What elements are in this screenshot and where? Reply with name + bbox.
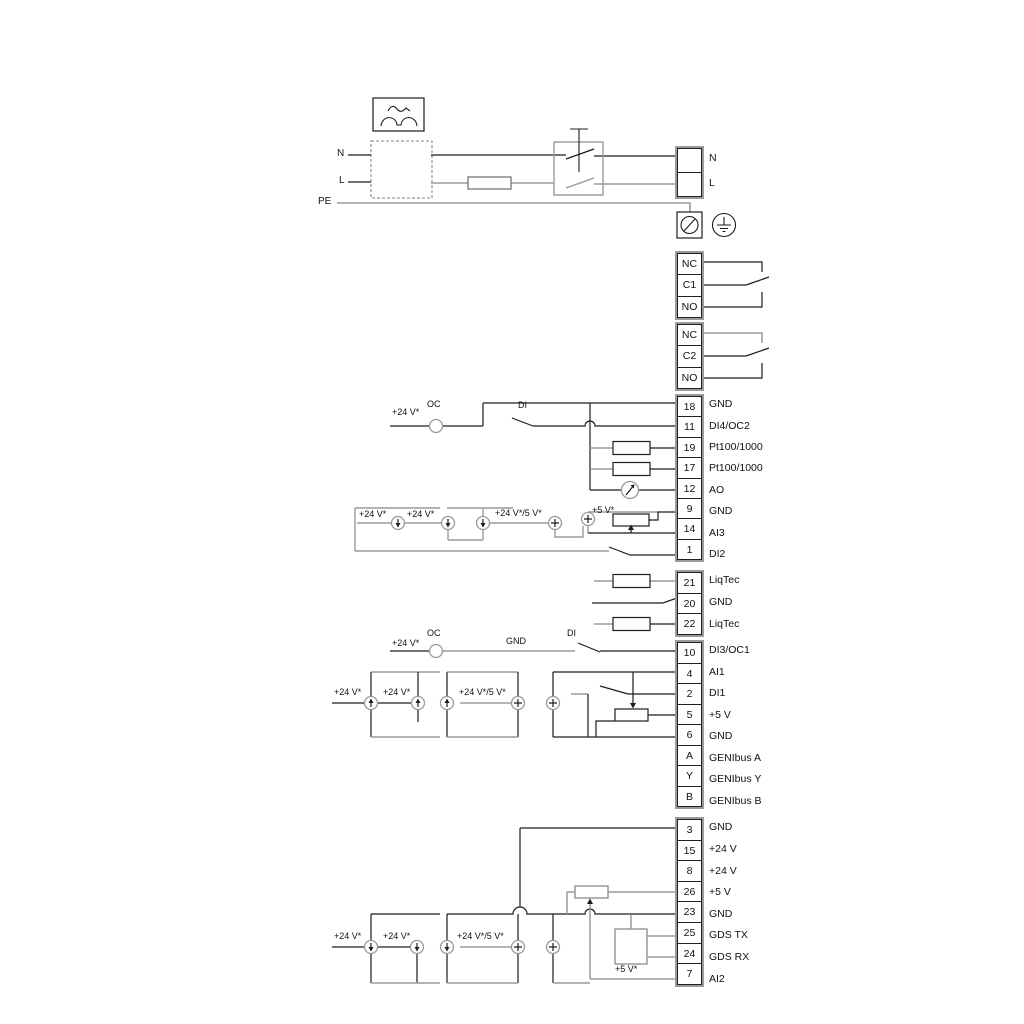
pt100-resistor-2 — [613, 463, 650, 476]
annotation-v24-4: +24 V* — [392, 638, 419, 648]
liqtec-strip: 212022 — [675, 570, 704, 637]
terminal-NO: NO — [677, 296, 702, 318]
supply-source-plus-icon — [547, 697, 560, 710]
terminal-label-di2: DI2 — [709, 548, 725, 560]
terminal-label--24-v: +24 V — [709, 843, 737, 855]
switch-actuator — [570, 129, 588, 172]
terminal-5: 5 — [677, 704, 702, 726]
terminal-label--24-v: +24 V — [709, 865, 737, 877]
terminal-Y: Y — [677, 765, 702, 787]
terminal-NC: NC — [677, 324, 702, 346]
annotation-n-left: N — [337, 148, 344, 159]
annotation-v24-5-2: +24 V*/5 V* — [459, 687, 506, 697]
supply-source-up-icon — [365, 697, 378, 710]
open-collector-icon — [430, 645, 443, 658]
potentiometer-ai2 — [575, 886, 608, 898]
annotation-v24-5-1: +24 V*/5 V* — [495, 508, 542, 518]
annotation-v24-3: +24 V* — [407, 509, 434, 519]
annotation-v24-1: +24 V* — [392, 407, 419, 417]
supply-source-down-icon — [477, 517, 490, 530]
terminal-label-gds-rx: GDS RX — [709, 951, 749, 963]
terminal-L — [677, 172, 702, 197]
io3-wiring — [332, 828, 677, 983]
earth-icon — [713, 214, 736, 237]
terminal-label-gnd: GND — [709, 505, 732, 517]
liqtec-resistor-1 — [613, 575, 650, 588]
ac-symbol-box — [373, 98, 424, 131]
terminal-label-genibus-b: GENIbus B — [709, 795, 762, 807]
sine-icon — [388, 106, 410, 111]
terminal-label-l: L — [709, 177, 715, 189]
terminal-label-gnd: GND — [709, 596, 732, 608]
relay-2: NCC2NO — [675, 322, 704, 391]
terminal-label-liqtec: LiqTec — [709, 618, 739, 630]
terminal-18: 18 — [677, 396, 702, 417]
terminal-21: 21 — [677, 572, 702, 594]
terminal-label-ai2: AI2 — [709, 973, 725, 985]
terminal-26: 26 — [677, 881, 702, 903]
annotation-v5-2: +5 V* — [615, 964, 637, 974]
terminal-9: 9 — [677, 498, 702, 519]
terminal-label-gnd: GND — [709, 730, 732, 742]
terminal-label-di4-oc2: DI4/OC2 — [709, 420, 750, 432]
annotation-v24-8: +24 V* — [383, 931, 410, 941]
terminal-label-ao: AO — [709, 484, 724, 496]
filter-box — [371, 141, 432, 198]
annotation-pe-left: PE — [318, 196, 331, 207]
supply-source-plus-icon — [512, 697, 525, 710]
terminal-22: 22 — [677, 613, 702, 635]
terminal-label-n: N — [709, 152, 717, 164]
terminal-A: A — [677, 745, 702, 767]
terminal-14: 14 — [677, 518, 702, 539]
liqtec-resistor-2 — [613, 618, 650, 631]
terminal-8: 8 — [677, 860, 702, 882]
relay2-wiring — [702, 333, 769, 378]
supply-source-up-icon — [441, 697, 454, 710]
terminal-label-genibus-a: GENIbus A — [709, 752, 761, 764]
di3-switch — [578, 643, 600, 652]
terminal-N — [677, 148, 702, 173]
terminal-label-genibus-y: GENIbus Y — [709, 773, 761, 785]
gds-module — [615, 929, 647, 964]
terminal-1: 1 — [677, 539, 702, 560]
terminal-10: 10 — [677, 642, 702, 664]
annotation-l-left: L — [339, 175, 345, 186]
terminal-17: 17 — [677, 457, 702, 478]
relay1-wiring — [702, 262, 769, 307]
supply-source-down-icon — [442, 517, 455, 530]
terminal-label-pt100-1000: Pt100/1000 — [709, 462, 763, 474]
terminal-label-ai1: AI1 — [709, 666, 725, 678]
wiper-arrow-ai3 — [628, 525, 634, 531]
annotation-v24-2: +24 V* — [359, 509, 386, 519]
terminal-label-gnd: GND — [709, 398, 732, 410]
power-terminal — [675, 146, 704, 199]
io1-wiring — [355, 403, 677, 555]
switch-blade-l — [566, 178, 594, 188]
annotation-oc-1: OC — [427, 399, 441, 409]
supply-source-down-icon — [411, 941, 424, 954]
switch-blade-n — [566, 149, 594, 159]
wiper-arrow-ai2 — [587, 899, 593, 905]
supply-source-up-icon — [412, 697, 425, 710]
terminal-12: 12 — [677, 478, 702, 499]
terminal-20: 20 — [677, 593, 702, 615]
di2-switch — [609, 547, 630, 555]
liqtec-wiring — [592, 575, 677, 631]
io-strip-3: 3158262325247 — [675, 817, 704, 987]
wiper-arrow-ai1 — [630, 703, 636, 709]
pe-terminal — [677, 212, 702, 238]
terminal-NC: NC — [677, 253, 702, 275]
terminal-19: 19 — [677, 437, 702, 458]
relay1-contact — [746, 277, 769, 285]
annotation-oc-2: OC — [427, 628, 441, 638]
supply-source-plus-icon — [547, 941, 560, 954]
annotation-v24-5: +24 V* — [334, 687, 361, 697]
relay2-contact — [746, 348, 769, 356]
terminal-label-pt100-1000: Pt100/1000 — [709, 441, 763, 453]
relay-1: NCC1NO — [675, 251, 704, 320]
wiring-diagram: NLNCC1NONCC2NOGNDDI4/OC2Pt100/1000Pt100/… — [0, 0, 1024, 1024]
fuse — [468, 177, 511, 189]
pe-wire — [337, 203, 690, 212]
terminal-6: 6 — [677, 724, 702, 746]
terminal-15: 15 — [677, 840, 702, 862]
open-collector-icon — [430, 420, 443, 433]
terminal-label-liqtec: LiqTec — [709, 574, 739, 586]
io-strip-1: 18111917129141 — [675, 394, 704, 562]
terminal-NO: NO — [677, 367, 702, 389]
terminal-label-gnd: GND — [709, 908, 732, 920]
annotation-di-2: DI — [567, 628, 576, 638]
pt100-resistor-1 — [613, 442, 650, 455]
terminal-label--5-v: +5 V — [709, 886, 731, 898]
terminal-C1: C1 — [677, 274, 702, 296]
terminal-B: B — [677, 786, 702, 808]
annotation-v24-7: +24 V* — [334, 931, 361, 941]
supply-source-plus-icon — [549, 517, 562, 530]
terminal-23: 23 — [677, 901, 702, 923]
terminal-25: 25 — [677, 922, 702, 944]
terminal-3: 3 — [677, 819, 702, 841]
supply-source-down-icon — [392, 517, 405, 530]
meter-icon — [622, 482, 639, 499]
terminal-label-ai3: AI3 — [709, 527, 725, 539]
annotation-v5-1: +5 V* — [592, 505, 614, 515]
annotation-v24-5-3: +24 V*/5 V* — [457, 931, 504, 941]
terminal-label-gds-tx: GDS TX — [709, 929, 748, 941]
potentiometer-ai1 — [615, 709, 648, 721]
supply-source-down-icon — [365, 941, 378, 954]
terminal-label-di3-oc1: DI3/OC1 — [709, 644, 750, 656]
terminal-24: 24 — [677, 943, 702, 965]
terminal-C2: C2 — [677, 345, 702, 367]
annotation-v24-6: +24 V* — [383, 687, 410, 697]
annotation-di-1: DI — [518, 400, 527, 410]
terminal-7: 7 — [677, 963, 702, 985]
humps-icon — [381, 118, 417, 126]
supply-source-plus-icon — [512, 941, 525, 954]
potentiometer-ai3 — [613, 514, 649, 526]
supply-source-down-icon — [441, 941, 454, 954]
terminal-label--5-v: +5 V — [709, 709, 731, 721]
terminal-11: 11 — [677, 416, 702, 437]
terminal-2: 2 — [677, 683, 702, 705]
di1-switch — [600, 686, 628, 694]
di4-switch — [512, 418, 533, 426]
io-strip-2: 104256AYB — [675, 640, 704, 809]
terminal-label-di1: DI1 — [709, 687, 725, 699]
terminal-4: 4 — [677, 663, 702, 685]
annotation-gnd-ann: GND — [506, 636, 526, 646]
terminal-label-gnd: GND — [709, 821, 732, 833]
